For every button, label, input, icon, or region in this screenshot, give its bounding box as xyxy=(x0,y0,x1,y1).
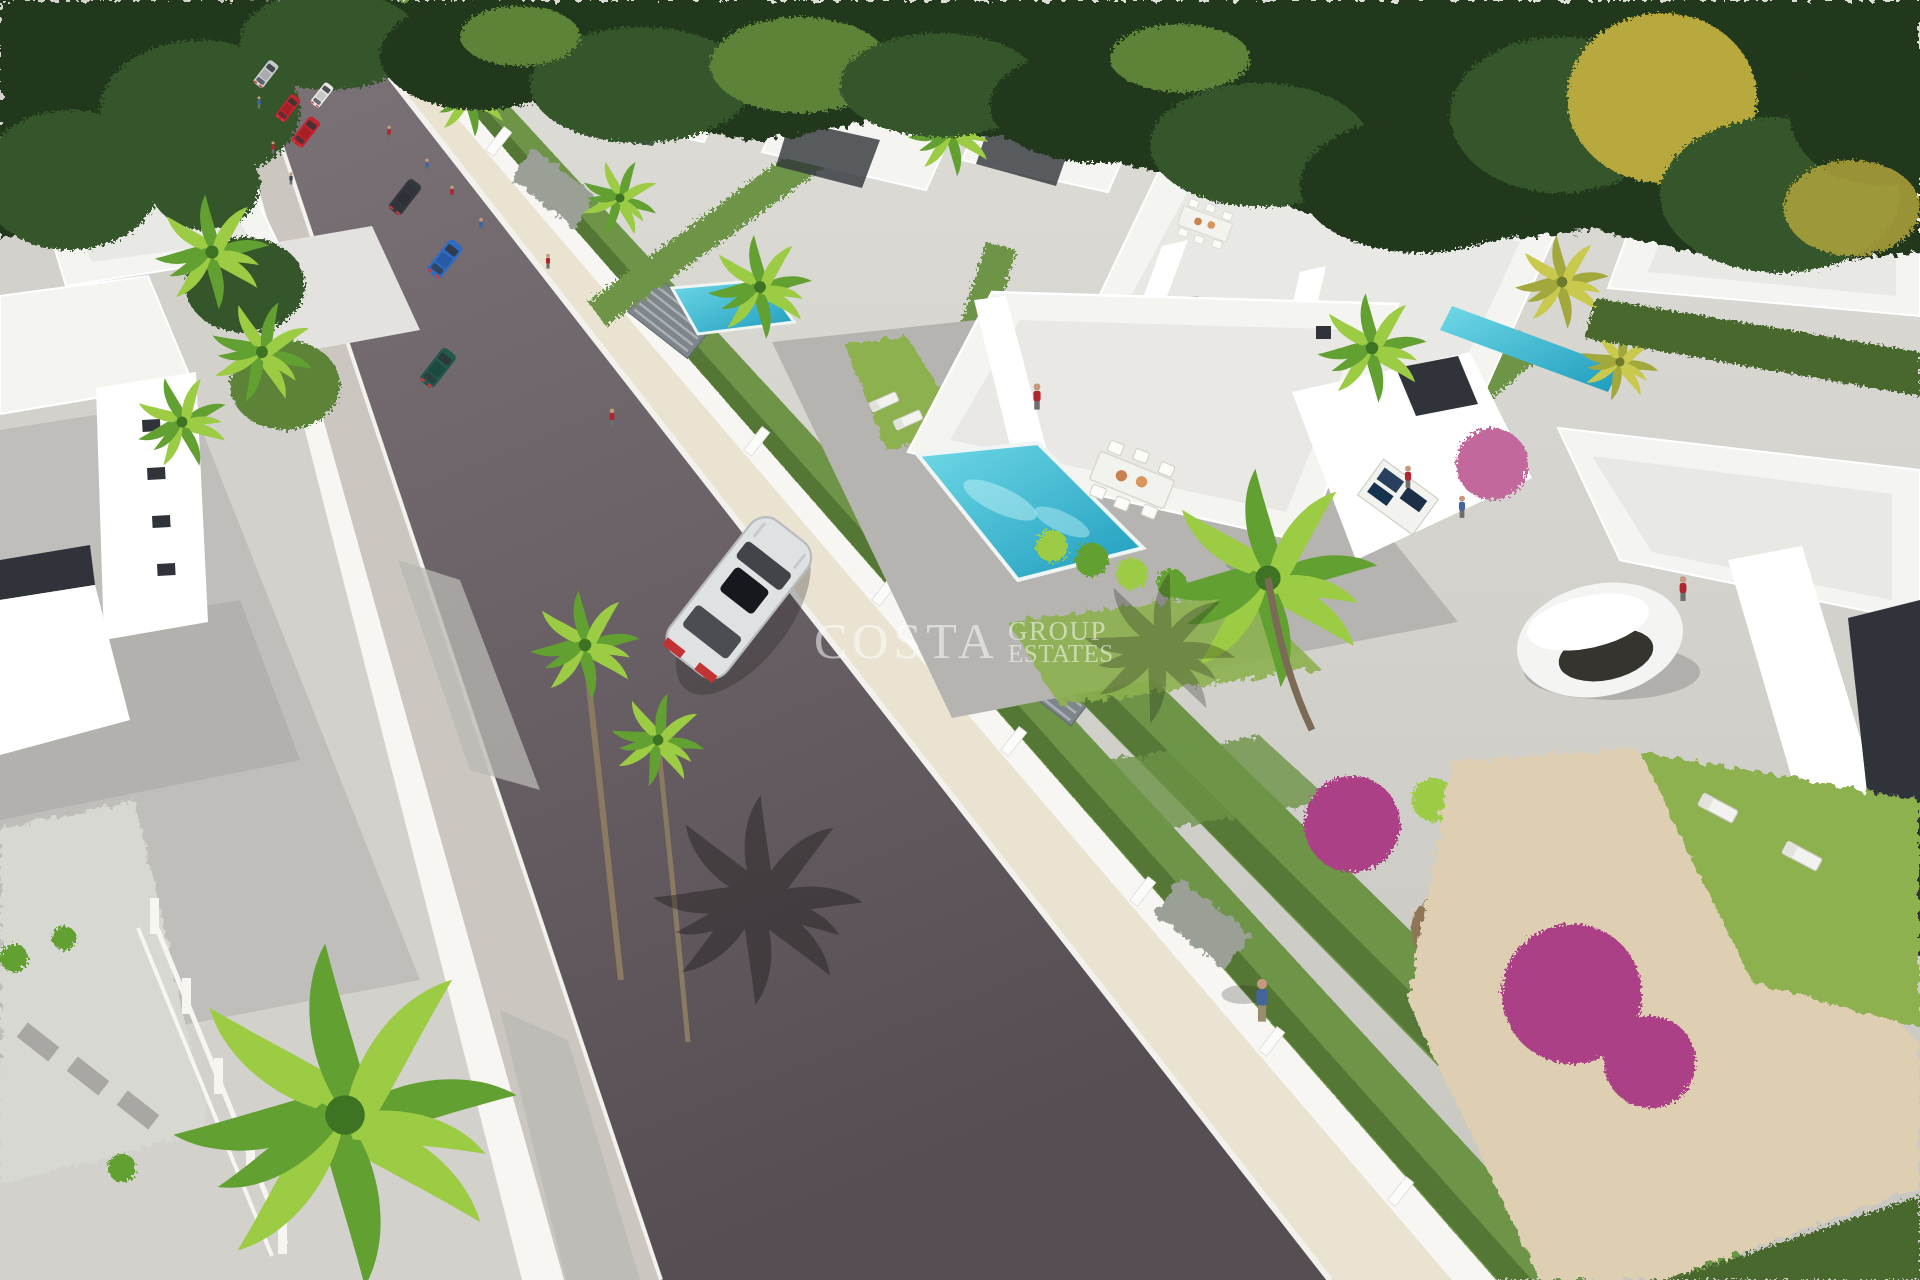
person-at-table xyxy=(1405,466,1411,488)
pedestrian xyxy=(610,408,615,425)
watermark-estates: ESTATES xyxy=(1008,640,1114,667)
window xyxy=(157,563,176,576)
watermark-brand: COSTA xyxy=(814,613,999,669)
grass-tuft xyxy=(0,944,28,972)
pedestrian xyxy=(257,96,260,108)
pedestrian xyxy=(546,254,550,269)
yellow-tree xyxy=(1784,160,1920,256)
bougainvillea xyxy=(1604,1016,1696,1108)
flower-bush xyxy=(1304,776,1400,872)
pedestrian xyxy=(271,141,274,153)
grass-tuft xyxy=(108,1154,136,1182)
pedestrian xyxy=(450,185,454,199)
person-at-table xyxy=(1459,496,1465,518)
pedestrian xyxy=(479,218,483,233)
scene-canvas: COSTA GROUP ESTATES xyxy=(0,0,1920,1280)
fence-post xyxy=(214,1058,223,1094)
person-at-daybed xyxy=(1680,576,1687,601)
roof-box xyxy=(1316,326,1331,339)
window xyxy=(147,467,166,480)
pedestrian xyxy=(387,125,391,139)
fence-post xyxy=(182,978,191,1014)
fence-post xyxy=(150,898,159,934)
woman-at-pool xyxy=(1033,384,1040,410)
window xyxy=(152,515,171,528)
aerial-render-of-villa-development: COSTA GROUP ESTATES xyxy=(0,0,1920,1280)
pedestrian xyxy=(425,158,429,172)
watermark: COSTA GROUP ESTATES xyxy=(814,613,1114,669)
pedestrian xyxy=(289,172,292,184)
flower-bush xyxy=(1456,428,1528,500)
grass-tuft xyxy=(52,926,76,950)
